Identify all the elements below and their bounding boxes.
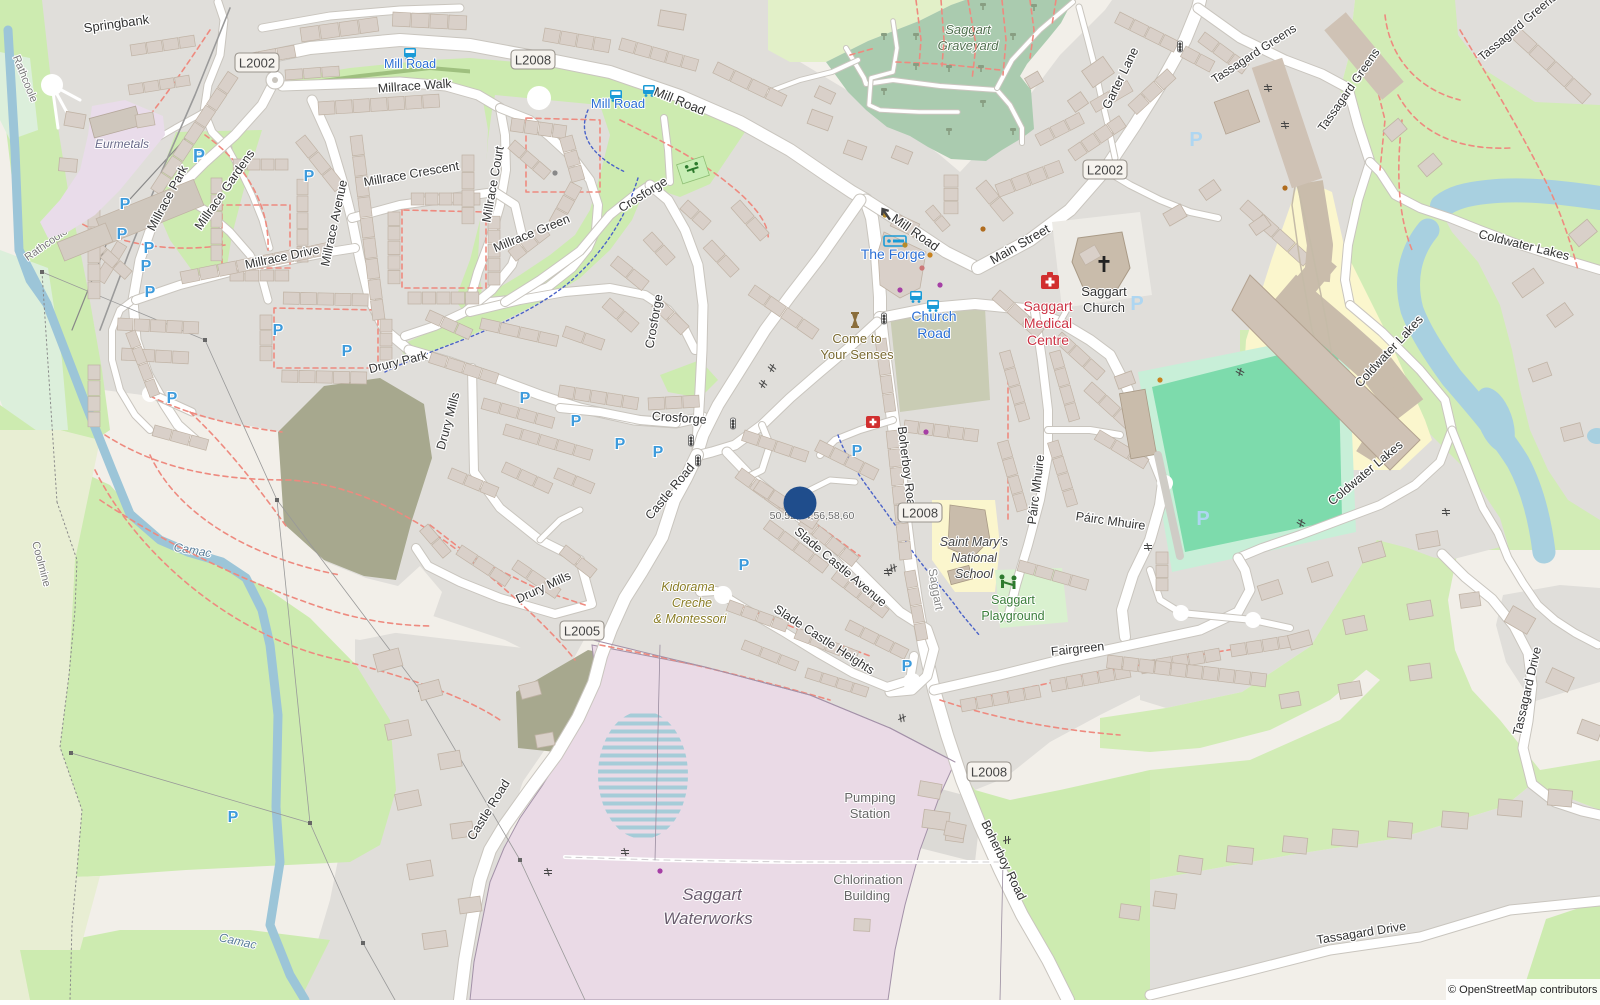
svg-text:Saggart: Saggart xyxy=(682,885,743,904)
svg-text:L2002: L2002 xyxy=(1087,163,1123,178)
svg-text:Road: Road xyxy=(917,325,950,341)
svg-text:P: P xyxy=(304,168,315,185)
svg-text:L2008: L2008 xyxy=(515,53,551,68)
svg-text:P: P xyxy=(145,284,156,301)
svg-text:L2008: L2008 xyxy=(902,506,938,521)
svg-text:Kidorama: Kidorama xyxy=(661,580,715,594)
svg-text:P: P xyxy=(117,226,128,243)
svg-text:L2008: L2008 xyxy=(971,765,1007,780)
svg-text:P: P xyxy=(1130,293,1143,315)
svg-text:Saint Mary's: Saint Mary's xyxy=(940,535,1008,549)
svg-text:Mill Road: Mill Road xyxy=(384,57,436,71)
svg-text:P: P xyxy=(739,557,750,574)
svg-text:P: P xyxy=(615,436,626,453)
svg-text:P: P xyxy=(1189,129,1202,151)
svg-text:Come to: Come to xyxy=(832,331,881,346)
svg-text:P: P xyxy=(852,443,863,460)
svg-text:Eurmetals: Eurmetals xyxy=(95,137,149,151)
svg-text:Creche: Creche xyxy=(672,596,712,610)
svg-text:Church: Church xyxy=(1083,300,1125,315)
svg-text:The Forge: The Forge xyxy=(861,246,926,262)
svg-text:Station: Station xyxy=(850,806,890,821)
svg-text:P: P xyxy=(120,196,131,213)
svg-text:& Montessori: & Montessori xyxy=(654,612,728,626)
svg-text:P: P xyxy=(1196,508,1209,530)
svg-text:Medical: Medical xyxy=(1024,315,1072,331)
svg-text:School: School xyxy=(955,567,994,581)
svg-text:L2005: L2005 xyxy=(564,624,600,639)
svg-text:P: P xyxy=(228,809,239,826)
svg-text:Saggart: Saggart xyxy=(945,22,992,37)
svg-text:Mill Road: Mill Road xyxy=(591,96,645,111)
svg-text:Graveyard: Graveyard xyxy=(938,38,999,53)
svg-text:P: P xyxy=(902,658,913,675)
svg-text:Saggart: Saggart xyxy=(1023,298,1072,314)
svg-text:P: P xyxy=(520,390,531,407)
svg-text:Pumping: Pumping xyxy=(844,790,895,805)
svg-text:Your Senses: Your Senses xyxy=(820,347,894,362)
svg-text:Building: Building xyxy=(844,888,890,903)
svg-text:Centre: Centre xyxy=(1027,332,1069,348)
svg-text:P: P xyxy=(193,146,205,166)
svg-text:Playground: Playground xyxy=(981,609,1044,623)
svg-text:P: P xyxy=(167,390,178,407)
svg-text:© OpenStreetMap contributors: © OpenStreetMap contributors xyxy=(1448,984,1598,996)
svg-text:Church: Church xyxy=(911,308,956,324)
svg-text:L2002: L2002 xyxy=(239,56,275,71)
svg-text:P: P xyxy=(144,240,155,257)
svg-text:P: P xyxy=(273,322,284,339)
svg-text:National: National xyxy=(951,551,998,565)
svg-text:Chlorination: Chlorination xyxy=(833,872,902,887)
svg-text:Saggart: Saggart xyxy=(1081,284,1127,299)
svg-text:P: P xyxy=(342,343,353,360)
svg-text:P: P xyxy=(571,413,582,430)
svg-text:P: P xyxy=(653,444,664,461)
svg-text:Saggart: Saggart xyxy=(991,593,1035,607)
svg-text:Waterworks: Waterworks xyxy=(663,909,753,928)
svg-text:P: P xyxy=(141,258,152,275)
